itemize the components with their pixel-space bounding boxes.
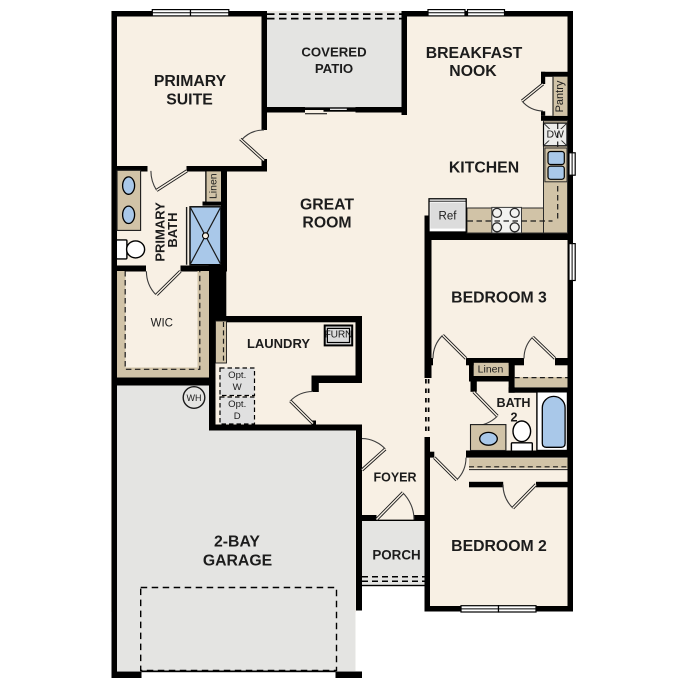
svg-text:BREAKFAST: BREAKFAST <box>426 45 523 62</box>
svg-text:Pantry: Pantry <box>554 80 566 112</box>
svg-text:KITCHEN: KITCHEN <box>449 160 519 177</box>
svg-text:COVERED: COVERED <box>301 45 366 60</box>
svg-text:FOYER: FOYER <box>373 471 416 485</box>
svg-text:2-BAY: 2-BAY <box>214 534 260 551</box>
svg-text:D: D <box>234 411 241 422</box>
svg-text:PORCH: PORCH <box>372 548 420 563</box>
svg-text:GARAGE: GARAGE <box>203 553 272 570</box>
svg-text:SUITE: SUITE <box>166 92 213 109</box>
svg-text:WH: WH <box>187 393 202 403</box>
svg-text:WIC: WIC <box>151 318 173 330</box>
svg-text:GREAT: GREAT <box>300 197 354 214</box>
svg-text:Linen: Linen <box>478 364 504 376</box>
svg-text:FURN: FURN <box>325 330 353 341</box>
svg-text:PRIMARY: PRIMARY <box>154 73 227 90</box>
svg-text:Opt.: Opt. <box>228 370 246 381</box>
svg-text:2: 2 <box>510 411 517 425</box>
svg-text:DW: DW <box>546 129 564 141</box>
svg-text:LAUNDRY: LAUNDRY <box>247 336 310 351</box>
svg-text:NOOK: NOOK <box>449 63 497 80</box>
svg-text:W: W <box>233 382 243 393</box>
svg-text:PATIO: PATIO <box>315 61 353 76</box>
svg-text:Opt.: Opt. <box>228 399 246 410</box>
svg-text:ROOM: ROOM <box>302 215 351 232</box>
svg-text:Linen: Linen <box>207 173 219 199</box>
svg-text:Ref: Ref <box>439 210 458 222</box>
svg-text:BEDROOM 3: BEDROOM 3 <box>451 289 547 306</box>
svg-text:BEDROOM 2: BEDROOM 2 <box>451 538 547 555</box>
svg-text:BATH: BATH <box>165 213 180 248</box>
svg-text:BATH: BATH <box>496 396 530 410</box>
